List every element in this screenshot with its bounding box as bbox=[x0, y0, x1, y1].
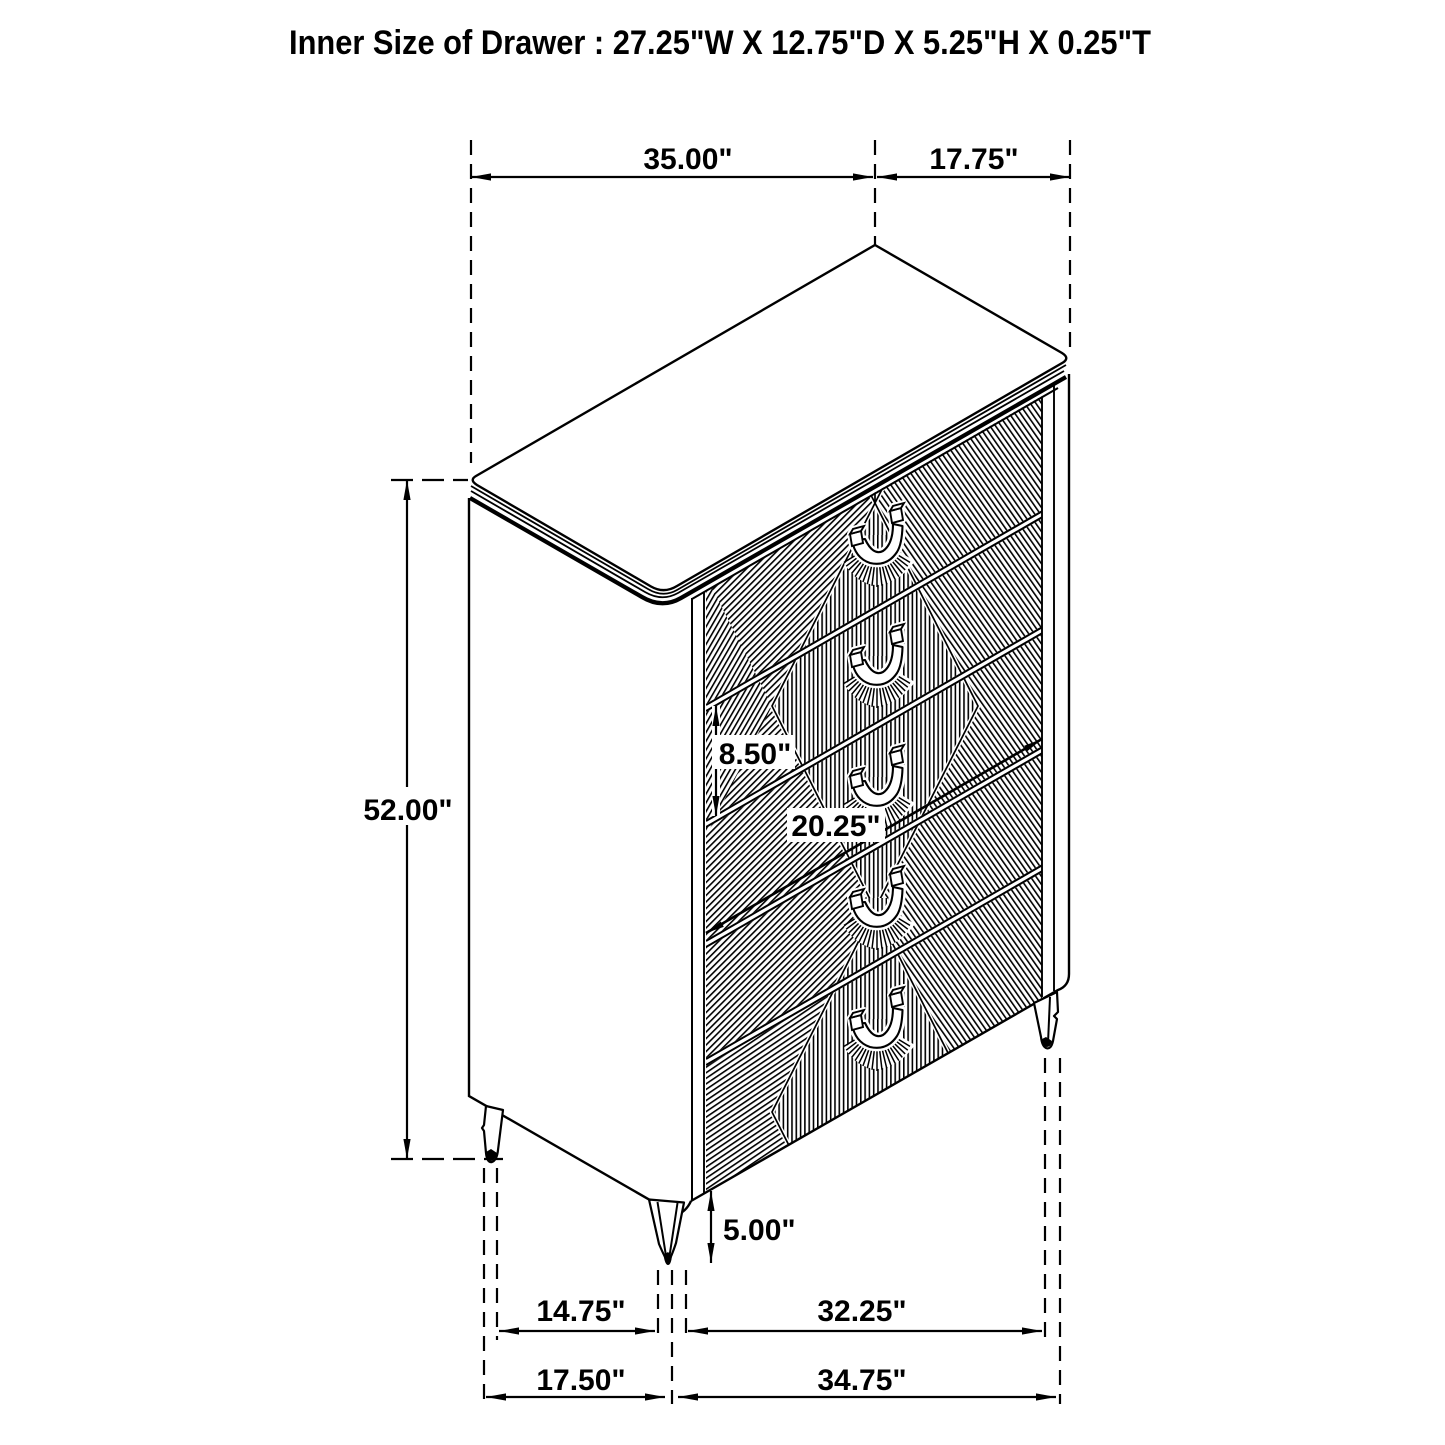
svg-text:20.25": 20.25" bbox=[791, 810, 880, 843]
svg-text:52.00": 52.00" bbox=[363, 794, 452, 827]
svg-text:5.00": 5.00" bbox=[723, 1214, 796, 1247]
svg-text:35.00": 35.00" bbox=[643, 143, 732, 176]
svg-text:8.50": 8.50" bbox=[719, 738, 792, 771]
svg-text:17.50": 17.50" bbox=[536, 1364, 625, 1397]
svg-text:32.25": 32.25" bbox=[817, 1295, 906, 1328]
svg-text:Inner Size of Drawer : 27.25"W: Inner Size of Drawer : 27.25"W X 12.75"D… bbox=[289, 24, 1151, 62]
svg-text:34.75": 34.75" bbox=[817, 1364, 906, 1397]
svg-text:17.75": 17.75" bbox=[929, 143, 1018, 176]
svg-text:14.75": 14.75" bbox=[536, 1295, 625, 1328]
